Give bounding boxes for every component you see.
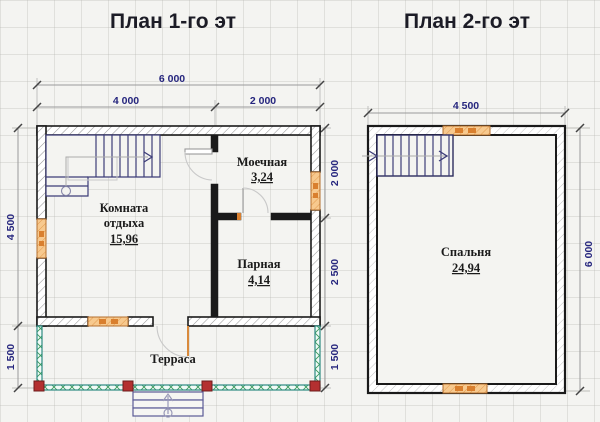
plan1-title: План 1-го эт bbox=[110, 10, 236, 33]
plan1-dim-wash-height: 2 000 bbox=[329, 160, 341, 186]
door-rest-to-wash bbox=[185, 149, 212, 180]
room-rest-area: 15,96 bbox=[110, 232, 138, 246]
plan1-group: План 1-го эт 6 000 4 000 2 000 bbox=[5, 10, 341, 417]
plan1-dim-height-terrace: 1 500 bbox=[5, 344, 17, 370]
room-wash-name: Моечная bbox=[237, 155, 288, 169]
plan1-dim-left: 4 500 1 500 bbox=[5, 124, 22, 392]
window-right-wash bbox=[311, 172, 320, 210]
window-left bbox=[37, 219, 46, 258]
window-bottom-rest bbox=[88, 317, 128, 326]
window-top-bedroom bbox=[443, 126, 490, 135]
plan2-dim-height: 6 000 bbox=[583, 241, 595, 267]
room-bedroom-area: 24,94 bbox=[452, 261, 481, 275]
plan1-dim-total-width: 6 000 bbox=[159, 73, 185, 85]
plan1-dim-right: 2 000 2 500 1 500 bbox=[321, 124, 341, 392]
floorplan-canvas: План 1-го эт 6 000 4 000 2 000 bbox=[0, 0, 600, 422]
entrance-steps bbox=[133, 392, 203, 417]
room-rest-name-line2: отдыха bbox=[104, 216, 145, 230]
plan2-dim-top: 4 500 bbox=[364, 100, 569, 117]
plan2-dim-right: 6 000 bbox=[576, 124, 595, 395]
plan2-group: План 2-го эт 4 500 6 000 bbox=[362, 10, 595, 395]
plan1-dim-height-main: 4 500 bbox=[5, 214, 17, 240]
plan1-dim-top: 6 000 4 000 2 000 bbox=[33, 73, 324, 111]
plan1-room-labels: Комната отдыха 15,96 Моечная 3,24 Парная… bbox=[100, 155, 288, 366]
plan2-dim-width: 4 500 bbox=[453, 100, 479, 112]
plan2-title: План 2-го эт bbox=[404, 10, 530, 33]
plan1-dim-width-right: 2 000 bbox=[250, 95, 276, 107]
plan1-extension-lines bbox=[12, 78, 331, 388]
plan1-staircase bbox=[46, 135, 160, 196]
room-steam-name: Парная bbox=[237, 257, 280, 271]
plan1-dim-steam-height: 2 500 bbox=[329, 259, 341, 285]
room-terrace-name: Терраса bbox=[150, 352, 196, 366]
door-wash-to-steam bbox=[237, 188, 268, 220]
plan1-dim-width-left: 4 000 bbox=[113, 95, 139, 107]
room-bedroom-name: Спальня bbox=[441, 245, 491, 259]
plan1-dim-terrace-height: 1 500 bbox=[329, 344, 341, 370]
window-bottom-bedroom bbox=[443, 384, 487, 393]
room-wash-area: 3,24 bbox=[251, 170, 274, 184]
room-rest-name-line1: Комната bbox=[100, 201, 149, 215]
room-steam-area: 4,14 bbox=[248, 273, 271, 287]
